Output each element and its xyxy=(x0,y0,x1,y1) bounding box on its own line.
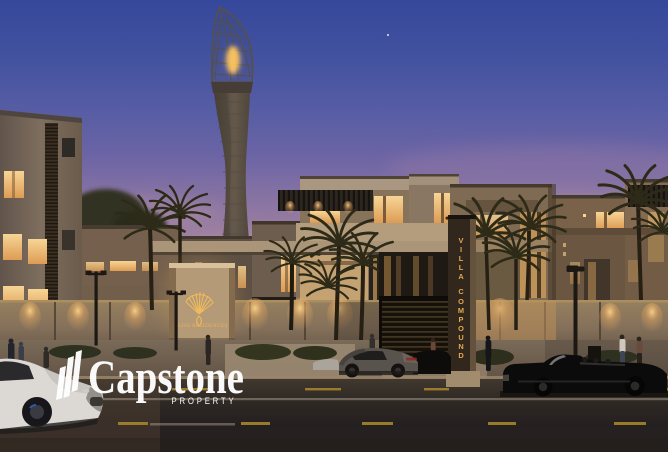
svg-text:U: U xyxy=(458,333,463,342)
svg-text:A: A xyxy=(458,272,464,281)
svg-text:PROPERTY: PROPERTY xyxy=(172,395,237,406)
svg-text:I: I xyxy=(460,245,462,254)
svg-text:C: C xyxy=(458,287,464,296)
svg-text:BLISS RESIDENCES: BLISS RESIDENCES xyxy=(174,323,227,329)
svg-text:L: L xyxy=(459,254,464,263)
svg-text:O: O xyxy=(458,297,464,306)
svg-text:V: V xyxy=(459,236,464,245)
svg-text:M: M xyxy=(458,306,464,315)
svg-text:O: O xyxy=(458,324,464,333)
svg-text:P: P xyxy=(459,315,464,324)
svg-text:L: L xyxy=(459,263,464,272)
svg-text:N: N xyxy=(458,342,463,351)
svg-text:D: D xyxy=(458,351,464,360)
